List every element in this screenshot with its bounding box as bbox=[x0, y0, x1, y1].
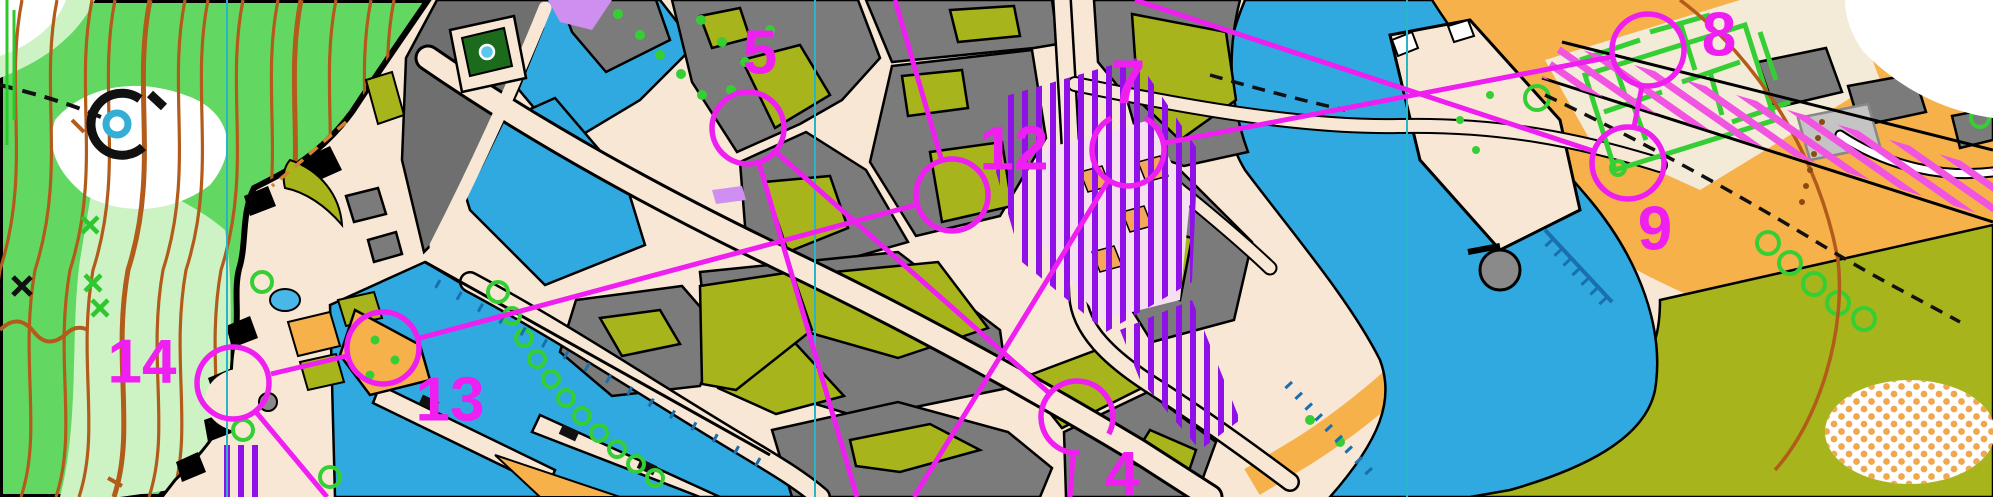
control-number: 9 bbox=[1638, 195, 1672, 264]
map-canvas: 45789121314 bbox=[0, 0, 1993, 497]
control-number: 8 bbox=[1702, 1, 1736, 70]
pond bbox=[270, 289, 300, 311]
rough-open-blob bbox=[1825, 380, 1993, 484]
control-number: 13 bbox=[416, 366, 485, 435]
control-number: 5 bbox=[743, 19, 777, 88]
control-number: 12 bbox=[980, 115, 1049, 184]
control-number: 4 bbox=[1105, 440, 1140, 497]
orienteering-map[interactable]: 45789121314 bbox=[0, 0, 1993, 497]
control-number: 7 bbox=[1111, 49, 1145, 118]
fountain-icon bbox=[450, 16, 526, 92]
control-number: 14 bbox=[108, 328, 177, 397]
leg-line bbox=[1070, 456, 1073, 497]
